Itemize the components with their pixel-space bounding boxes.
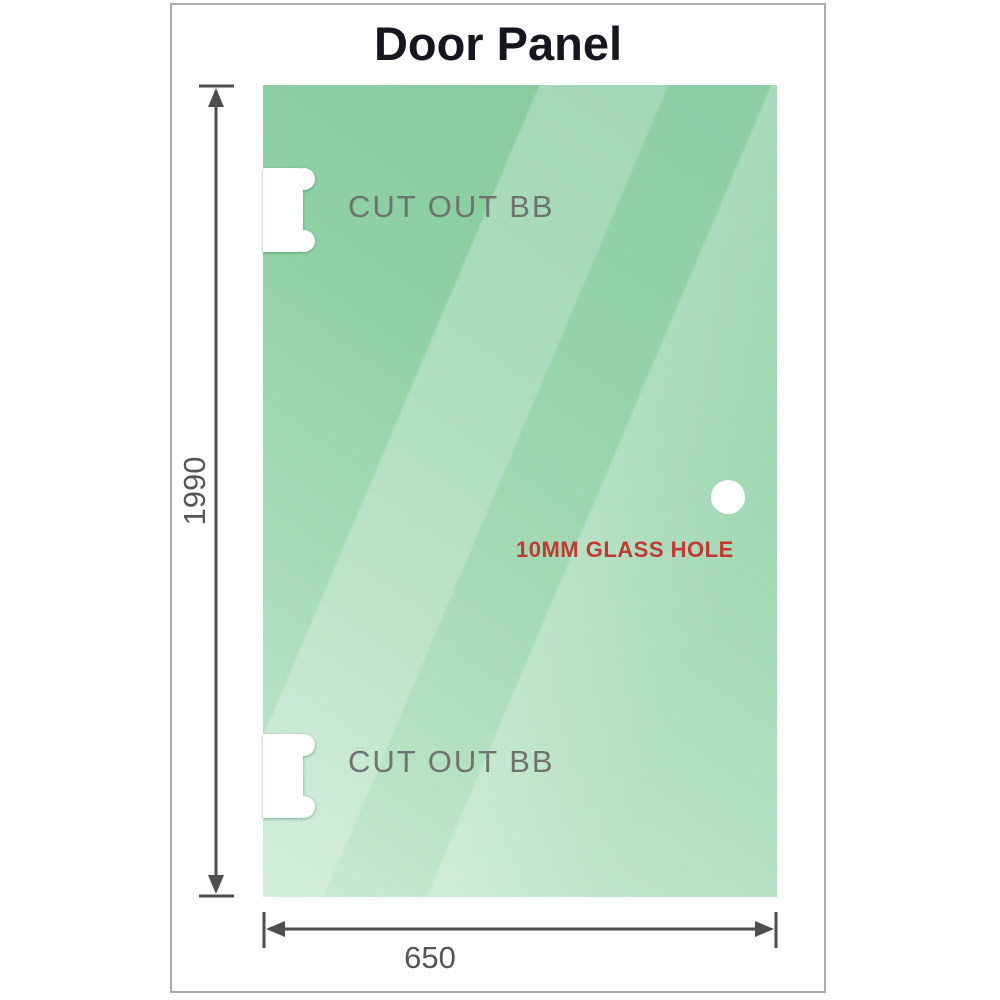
hinge-cutout-bottom-icon [263, 732, 317, 820]
cutout-bottom-label: CUT OUT BB [348, 744, 555, 780]
width-dimension-value: 650 [404, 940, 456, 975]
glass-hole-label: 10MM GLASS HOLE [516, 537, 734, 563]
cutout-top-label: CUT OUT BB [348, 189, 555, 225]
diagram-title: Door Panel [170, 16, 826, 71]
height-dimension-value: 1990 [177, 457, 213, 526]
glass-hole-icon [711, 480, 745, 514]
width-dimension-label-wrap: 650 [390, 940, 470, 976]
hinge-cutout-top-icon [263, 166, 317, 254]
height-dimension-label-wrap: 1990 [165, 451, 225, 531]
door-panel-diagram: Door Panel CUT OUT BB CUT OUT BB 10MM GL… [0, 0, 1000, 1000]
